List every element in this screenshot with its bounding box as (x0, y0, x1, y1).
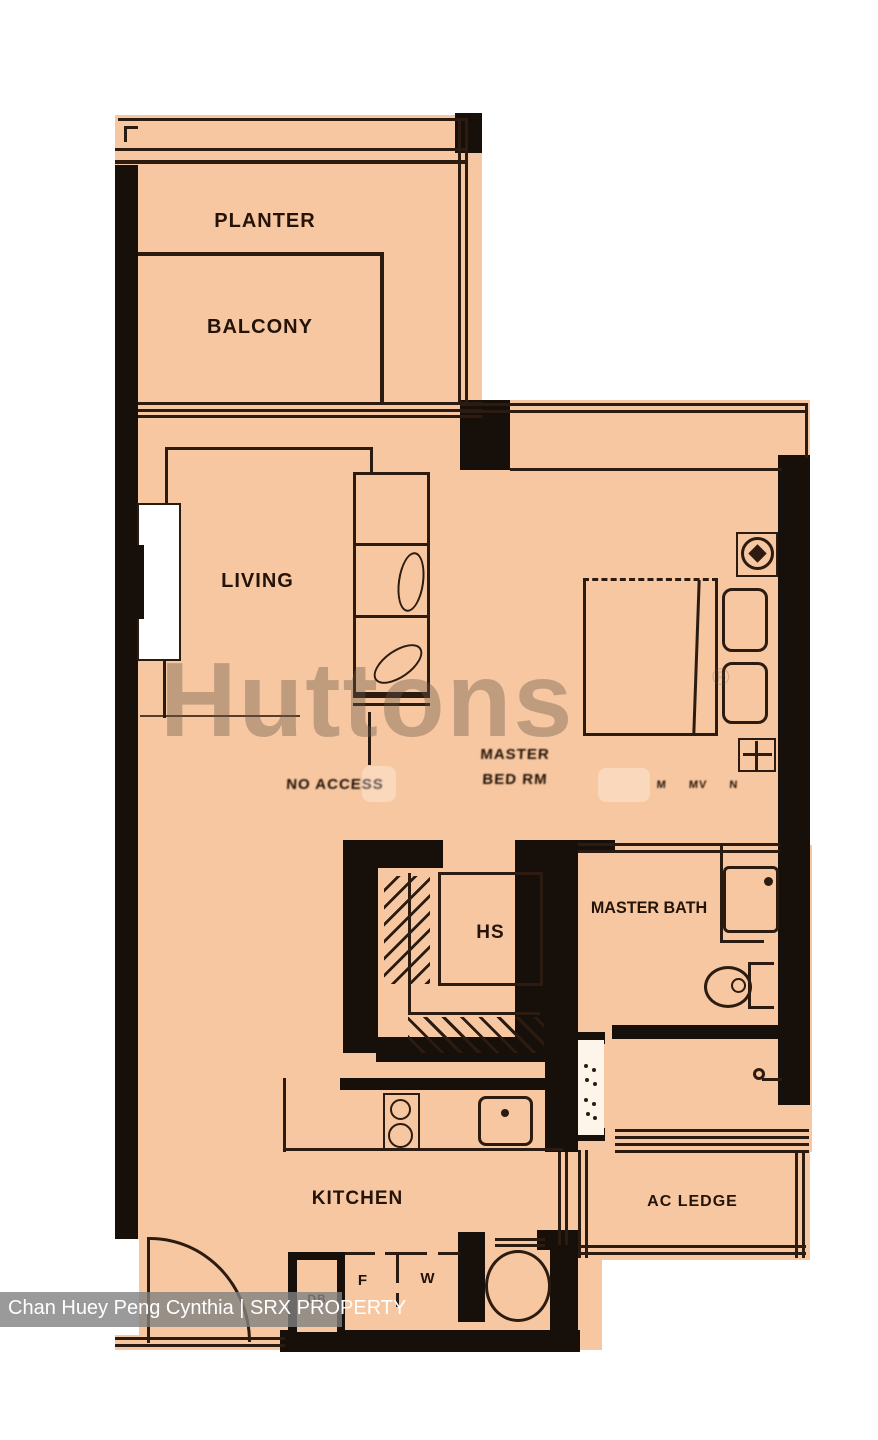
line-right-window-2 (465, 118, 468, 404)
line-balcony-bottom-3 (138, 415, 482, 418)
room-label-ac-ledge: AC LEDGE (625, 1193, 760, 1211)
living-console-shelf-1 (356, 543, 427, 546)
line-balcony-bottom-2 (138, 409, 482, 412)
room-label-planter: PLANTER (180, 210, 350, 233)
line-planter-band-1 (115, 148, 467, 151)
line-bedroom-top-2 (460, 410, 808, 413)
line-counter-bottom (283, 1148, 563, 1151)
line-louvre-3 (615, 1143, 809, 1146)
line-balcony-bottom-1 (138, 402, 482, 405)
door-strip-dot (585, 1078, 589, 1082)
room-label-living: LIVING (185, 570, 330, 593)
line-planter-band-2 (115, 160, 467, 164)
bath-door-strip (578, 1040, 604, 1135)
line-ac-bottom-1 (578, 1245, 806, 1248)
room-label-master-bath: MASTER BATH (577, 898, 721, 918)
line-louvre-2 (615, 1136, 809, 1139)
line-top-outer (118, 118, 467, 121)
floorplan-canvas: PLANTER BALCONY LIVING NO ACCESS MASTER … (0, 0, 878, 1440)
watermark-ghost-blob (598, 768, 650, 802)
stove-burner-1 (390, 1099, 411, 1120)
agent-caption: Chan Huey Peng Cynthia | SRX PROPERTY (0, 1292, 342, 1320)
line-wash-top-2 (495, 1244, 545, 1247)
line-louvre-4 (615, 1150, 809, 1153)
registered-trademark-icon: ® (712, 664, 730, 692)
line-louvre-1 (615, 1129, 809, 1132)
line-door-handle (762, 1078, 782, 1081)
bath-sink-drain (764, 877, 773, 886)
line-bedroom-right-corner (805, 403, 808, 458)
wall-right-outer (778, 455, 810, 1105)
wall-mid-left (343, 840, 443, 868)
kitchen-sink-drain (501, 1109, 509, 1117)
line-fw-divider-1 (396, 1255, 399, 1283)
hs-hatching-bottom (408, 1017, 544, 1053)
line-bath-partition-h (720, 940, 764, 943)
watermark-ghost-blob (362, 766, 396, 802)
wall-bottom-outer (280, 1330, 580, 1352)
line-kb-lower-2 (565, 1152, 568, 1245)
line-fw-dash-2 (385, 1252, 427, 1255)
room-label-kitchen: KITCHEN (305, 1188, 410, 1210)
door-strip-dot (593, 1116, 597, 1120)
caption-bar: Chan Huey Peng Cynthia | SRX PROPERTY (0, 1292, 342, 1327)
wall-bath-bottom (612, 1025, 810, 1039)
wall-counter-top (340, 1078, 563, 1090)
room-label-balcony: BALCONY (175, 316, 345, 339)
huttons-watermark: Huttons (160, 640, 574, 761)
line-ac-bottom-2 (578, 1252, 806, 1255)
line-bottom-thin-2 (115, 1344, 285, 1347)
line-planter-balcony-divider (138, 252, 383, 256)
label-washer: W (410, 1270, 446, 1287)
line-wash-top-1 (495, 1238, 545, 1241)
line-counter-left (283, 1078, 286, 1152)
room-label-hs: HS (448, 922, 533, 944)
door-strip-dot (593, 1082, 597, 1086)
line-top-hook-h (124, 126, 138, 129)
wash-basin-circle (485, 1250, 551, 1322)
hs-hatching-left (384, 876, 430, 984)
line-living-left (165, 447, 168, 507)
line-cistern-top (748, 962, 774, 965)
bed-pillow-1 (722, 588, 768, 652)
wall-left-outer (115, 165, 138, 1239)
door-strip-dot (592, 1068, 596, 1072)
line-hs-hatch-h (408, 1012, 540, 1015)
line-ac-right-1 (795, 1150, 798, 1258)
door-strip-dot (584, 1064, 588, 1068)
line-living-top-corner (370, 447, 373, 473)
line-bedroom-top-1 (460, 403, 808, 406)
line-living-top (167, 447, 373, 450)
wall-kitchen-bath (545, 840, 578, 1152)
line-bath-top-1 (578, 843, 780, 846)
line-balcony-right (380, 252, 384, 404)
living-bay-window-pier (137, 545, 144, 619)
line-kb-lower-1 (558, 1152, 561, 1245)
wall-wash-right-pier (550, 1245, 578, 1345)
door-strip-dot (592, 1102, 596, 1106)
line-ac-right-2 (802, 1150, 805, 1258)
wall-mid-right (515, 840, 545, 868)
toilet-drain (731, 978, 746, 993)
line-bedroom-window-sill (510, 468, 782, 471)
line-cistern-bottom (748, 1006, 774, 1009)
door-strip-dot (584, 1098, 588, 1102)
living-console-shelf-2 (356, 615, 427, 618)
wall-wash-left-pier (458, 1232, 485, 1322)
bath-sink (723, 866, 779, 933)
wall-hs-left (343, 868, 378, 1053)
bath-door-handle-icon (753, 1068, 765, 1080)
line-ac-left-2 (585, 1150, 588, 1258)
line-fw-dash-1 (345, 1252, 375, 1255)
line-fw-dash-3 (438, 1252, 460, 1255)
stove-burner-2 (388, 1123, 413, 1148)
kitchen-sink-icon (478, 1096, 533, 1146)
line-bath-top-2 (578, 850, 780, 853)
label-fridge: F (345, 1272, 381, 1289)
door-strip-dot (586, 1112, 590, 1116)
room-label-master-bed-2: BED RM (455, 771, 576, 788)
line-ac-left-1 (578, 1150, 581, 1258)
bedside-unit-cross-h (743, 753, 772, 756)
line-right-window-1 (458, 118, 461, 404)
